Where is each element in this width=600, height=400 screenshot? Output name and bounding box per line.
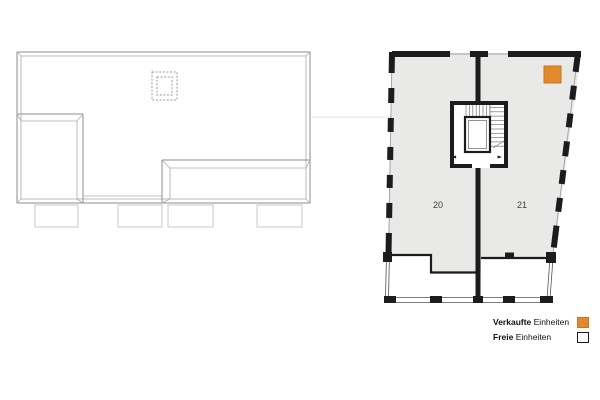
legend: Verkaufte Einheiten Freie Einheiten: [493, 316, 589, 346]
stairwell-core: ◄ ►: [450, 101, 508, 168]
architectural-plan-page: ◄ ►: [0, 0, 600, 400]
pillar: [546, 252, 556, 263]
pillar: [384, 296, 396, 303]
roof-terraces: [35, 205, 302, 227]
terrace-outline: [35, 205, 78, 227]
roof-corner-miters: [17, 52, 310, 203]
terrace-outline: [118, 205, 162, 227]
entry-arrow-left-icon: ◄: [452, 154, 457, 161]
roof-band-right: [162, 160, 310, 203]
legend-label-free: Freie Einheiten: [493, 331, 551, 343]
entry-arrow-right-icon: ►: [498, 154, 503, 161]
wall-stub: [505, 253, 514, 259]
pillar: [473, 296, 483, 303]
pillar: [540, 296, 553, 303]
pillar: [383, 252, 392, 262]
pillar: [430, 296, 442, 303]
terrace-outline: [257, 205, 302, 227]
legend-row-sold: Verkaufte Einheiten: [493, 316, 589, 328]
legend-row-free: Freie Einheiten: [493, 331, 589, 343]
roof-outline-outer: [17, 52, 310, 203]
sold-swatch: [577, 317, 589, 328]
roof-step-left: [17, 114, 83, 203]
free-swatch: [577, 332, 589, 343]
terrace-outline: [168, 205, 213, 227]
pillar: [503, 296, 515, 303]
roof-outline-inner: [21, 56, 306, 199]
sold-unit-marker: [544, 66, 561, 83]
roof-plan: [17, 52, 391, 227]
top-wall: [392, 51, 581, 57]
floor-plan: ◄ ►: [383, 51, 581, 303]
unit-21-label[interactable]: 21: [517, 200, 527, 210]
legend-label-sold: Verkaufte Einheiten: [493, 316, 569, 328]
unit-divider-wall: [476, 57, 481, 298]
unit-20-label[interactable]: 20: [433, 200, 443, 210]
skylight-square: [152, 72, 177, 100]
